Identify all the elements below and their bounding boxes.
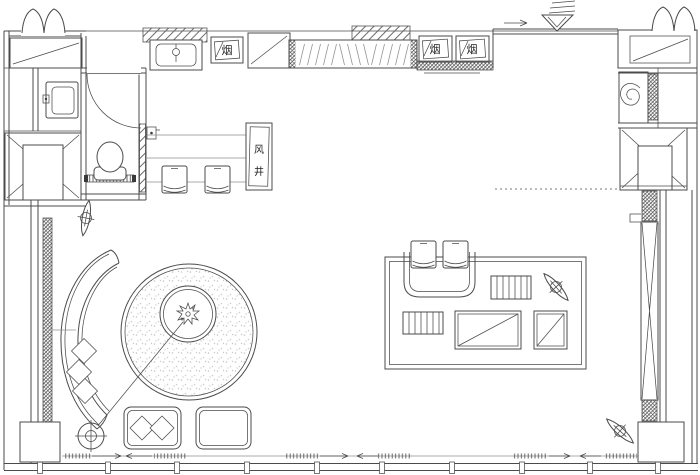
column-bottom-left	[20, 422, 60, 462]
air-shaft-label-wind: 风	[254, 144, 264, 156]
stair-room-top-center	[248, 33, 290, 68]
wc-door	[87, 74, 141, 129]
elevator-left	[5, 133, 81, 200]
shaft-door-strip	[648, 74, 658, 120]
smoke-shaft-1: 烟	[211, 37, 243, 63]
entry-marker	[542, 1, 575, 31]
air-shaft-label-well: 井	[254, 165, 264, 178]
louver-screen	[289, 40, 417, 68]
wall-switch-symbol	[147, 127, 160, 139]
right-wall-assembly	[630, 191, 658, 421]
exterior-walls	[4, 30, 697, 470]
slatted-table-2	[403, 312, 443, 334]
stair-room-top-left	[10, 38, 82, 68]
top-right-block	[618, 7, 697, 190]
bottom-bench-2	[196, 407, 251, 449]
kitchen-sink	[150, 40, 202, 70]
rug-seating-group	[385, 241, 586, 369]
plant-symbol	[538, 268, 575, 306]
hatched-wall-2	[352, 26, 410, 40]
crosshatch-band	[417, 61, 493, 70]
curved-bench	[52, 250, 119, 429]
plant-symbol	[601, 413, 639, 450]
slatted-table-1	[491, 276, 531, 299]
column-bottom-right	[638, 422, 684, 462]
stair-room-top-right	[618, 30, 697, 68]
sliding-door-track	[62, 454, 640, 459]
stool	[162, 166, 187, 193]
armchair	[411, 241, 436, 268]
bottom-bench-1	[124, 407, 181, 449]
mid-features: 风 井	[147, 123, 272, 193]
plant-symbol	[75, 199, 98, 237]
floor-plan-svg: 烟 烟 烟	[0, 0, 700, 475]
service-room-spiral	[619, 72, 648, 123]
elevator-right	[620, 128, 687, 190]
side-table	[534, 311, 567, 349]
armchair	[443, 241, 468, 268]
smoke-shaft-label: 烟	[222, 43, 233, 57]
smoke-shaft-2: 烟	[419, 36, 452, 62]
wc-room	[81, 33, 160, 200]
smoke-shaft-3: 烟	[456, 36, 489, 62]
curtain-wall	[4, 462, 698, 474]
coffee-table	[455, 311, 521, 349]
plan-linework: 烟 烟 烟	[4, 1, 698, 474]
top-service-band: 烟 烟 烟	[143, 1, 618, 189]
stool	[205, 166, 230, 193]
smoke-shaft-label: 烟	[430, 42, 441, 56]
smoke-shaft-label: 烟	[467, 42, 478, 56]
spiral-symbol	[621, 83, 640, 105]
air-shaft-box: 风 井	[246, 123, 272, 190]
entry-direction-arrow	[504, 20, 527, 26]
top-left-block	[4, 9, 86, 200]
floor-plan: 烟 烟 烟	[0, 0, 700, 475]
toilet	[94, 142, 126, 180]
washbasin	[43, 82, 78, 118]
